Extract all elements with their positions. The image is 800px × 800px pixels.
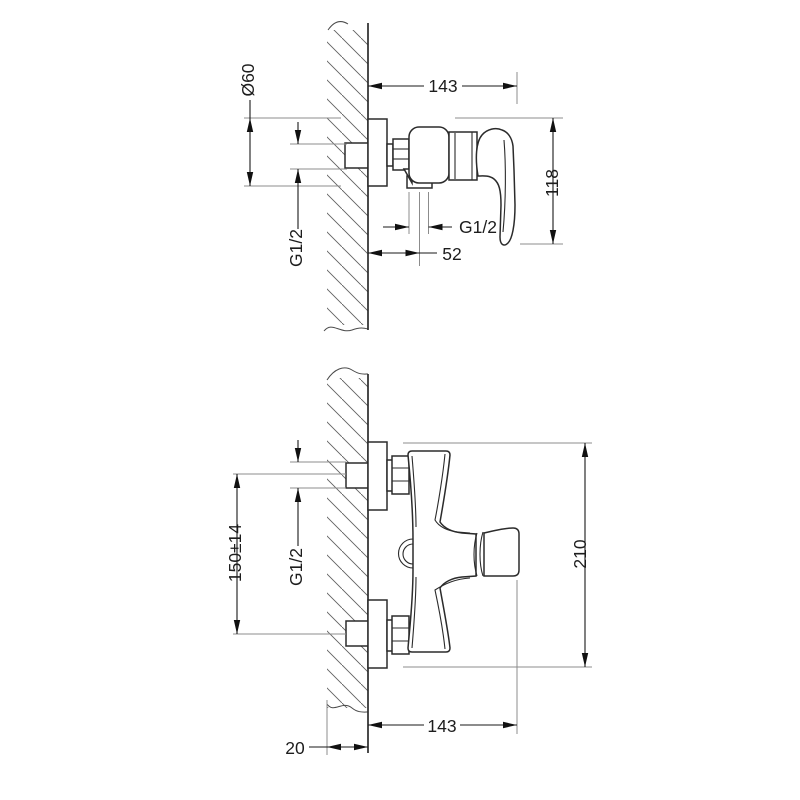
wall-break-line-top: [328, 22, 348, 30]
dim-wall-offset-20: 20: [285, 700, 368, 758]
dim-label-depth-front: 143: [427, 716, 456, 736]
front-view: 150±14 G1/2 210: [225, 368, 592, 758]
supply-pipe-bottom: [346, 621, 368, 646]
dim-label-wall-inlet-thread: G1/2: [286, 229, 306, 267]
cartridge-housing: [449, 132, 477, 180]
dim-label-inlet-thread-front: G1/2: [286, 548, 306, 586]
wall-section-side: [324, 22, 368, 331]
escutcheon-top: [368, 442, 387, 510]
dim-label-overall-height: 210: [570, 539, 590, 568]
hex-nut-bottom: [392, 616, 409, 654]
valve-body-side: [409, 127, 449, 183]
dim-label-outlet-offset: 52: [442, 244, 461, 264]
dim-label-outlet-thread: G1/2: [459, 217, 497, 237]
hex-nut-top: [392, 456, 409, 494]
dim-label-escutcheon-diameter: Ø60: [238, 63, 258, 96]
escutcheon-side: [368, 119, 387, 186]
diverter-bump-inner: [403, 544, 413, 564]
hex-nut-side: [393, 139, 409, 170]
wall-section-front: [327, 368, 368, 753]
dim-escutcheon-diameter: Ø60: [238, 63, 341, 186]
supply-pipe-top: [346, 463, 368, 488]
handle-knob-front: [484, 528, 519, 576]
technical-drawing-page: Ø60 G1/2 143: [0, 0, 800, 800]
escutcheon-bottom: [368, 600, 387, 668]
collar-side: [387, 144, 393, 166]
dim-outlet-offset-52: 52: [368, 192, 462, 266]
supply-pipe-side: [345, 143, 368, 168]
dim-label-wall-offset: 20: [285, 738, 305, 758]
dim-depth-143-side: 143: [368, 72, 517, 104]
side-view: Ø60 G1/2 143: [238, 22, 563, 331]
shower-mixer-installation-drawing: Ø60 G1/2 143: [0, 0, 800, 800]
dim-label-depth-side: 143: [428, 76, 457, 96]
wall-break-line-bottom: [324, 327, 368, 331]
wall-hatching: [327, 30, 368, 325]
wall-hatching: [327, 378, 368, 708]
dim-label-height-118: 118: [542, 169, 562, 197]
dim-outlet-thread: G1/2: [383, 192, 497, 237]
faucet-front: [346, 442, 519, 668]
dim-label-inlet-center-distance: 150±14: [225, 524, 245, 583]
handle-collar-curve: [480, 532, 483, 576]
